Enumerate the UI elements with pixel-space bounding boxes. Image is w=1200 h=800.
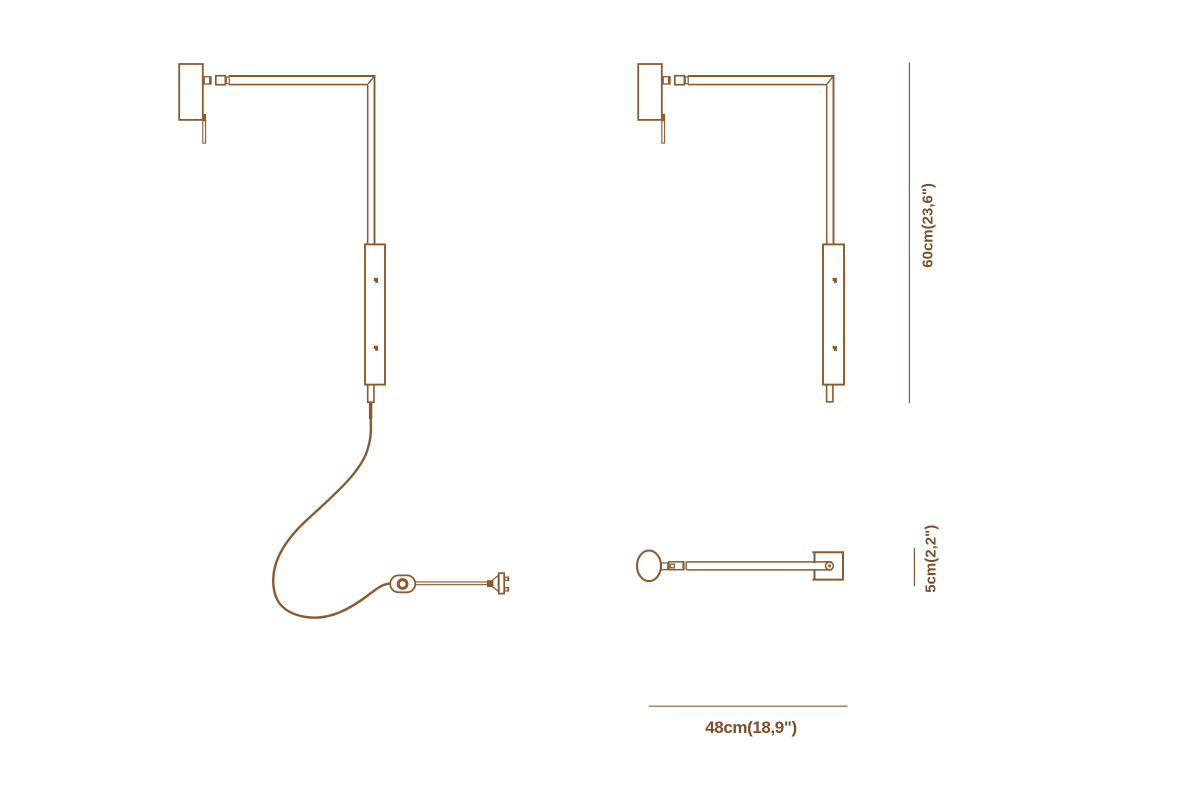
svg-text:48cm(18,9"): 48cm(18,9") — [705, 718, 797, 737]
svg-text:60cm(23,6"): 60cm(23,6") — [920, 183, 937, 268]
svg-text:5cm(2,2"): 5cm(2,2") — [923, 525, 940, 593]
